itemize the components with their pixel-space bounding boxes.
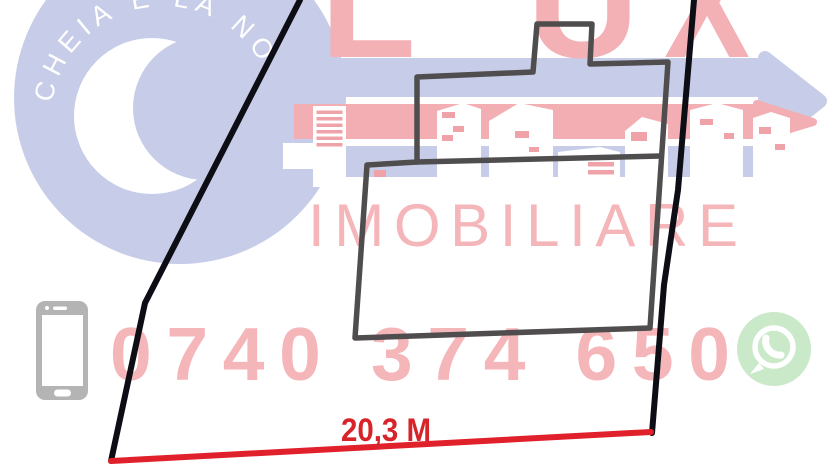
- silhouette-house: [690, 103, 743, 186]
- plot-sketch-image: CHEIA E LA NOI L U X IM: [0, 0, 835, 467]
- frontage-measure-label: 20,3 M: [341, 412, 431, 448]
- smartphone-icon: [36, 301, 88, 400]
- whatsapp-icon: [737, 312, 811, 386]
- brand-letter-u: U: [527, 0, 639, 89]
- silhouette-house: [489, 103, 553, 190]
- plot-sketch-canvas: CHEIA E LA NOI L U X IM: [0, 0, 835, 467]
- brand-letter-l: L: [320, 0, 416, 89]
- silhouette-box: [283, 143, 313, 169]
- brand-letter-x: X: [664, 0, 750, 89]
- watermark-phone-number: 0740 374 650: [110, 312, 730, 396]
